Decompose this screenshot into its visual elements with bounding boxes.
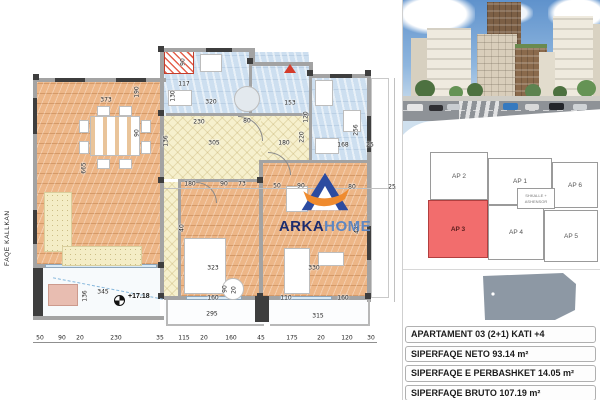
arkahome-logo-mark bbox=[299, 172, 351, 212]
facade-side-label: FAQE KALLKAN bbox=[4, 186, 11, 266]
dim-label: 20 bbox=[317, 335, 325, 342]
tower-roof-green bbox=[515, 44, 547, 48]
dim-label: 120 bbox=[341, 335, 352, 342]
dim-label: 73 bbox=[238, 181, 246, 188]
dim-label: 320 bbox=[205, 99, 216, 106]
key-plan-core: SHKALLE + ASHENSOR bbox=[517, 188, 555, 209]
dim-label: 45 bbox=[257, 335, 265, 342]
site-plan bbox=[405, 272, 598, 324]
car bbox=[503, 103, 518, 110]
car bbox=[407, 104, 423, 111]
keyplan-unit-ap5[interactable]: AP 5 bbox=[544, 210, 598, 262]
dim-label: 230 bbox=[110, 335, 121, 342]
dim-label: 130 bbox=[170, 90, 177, 101]
dim-label: 120 bbox=[303, 111, 310, 122]
page: FAQE KALLKAN bbox=[0, 0, 600, 400]
floor-plan: FAQE KALLKAN bbox=[0, 0, 402, 400]
info-row: APARTAMENT 03 (2+1) KATI +4 bbox=[405, 326, 596, 343]
dim-label: 136 bbox=[163, 135, 170, 146]
dim-label: 35 bbox=[156, 335, 164, 342]
site-plan-shape bbox=[405, 272, 598, 324]
level-marker-value: +17.18 bbox=[128, 293, 150, 300]
dim-label: 20 bbox=[200, 335, 208, 342]
dim-label: 90 bbox=[220, 181, 228, 188]
dim-label: 30 bbox=[367, 335, 375, 342]
dim-label: 180 bbox=[278, 140, 289, 147]
dim-label: 175 bbox=[286, 335, 297, 342]
dim-label: 330 bbox=[308, 265, 319, 272]
car bbox=[573, 104, 587, 110]
logo-name-primary: ARKA bbox=[279, 218, 324, 235]
unit-label: AP 2 bbox=[452, 173, 466, 180]
logo-name-secondary: HOME bbox=[324, 218, 371, 235]
separator-line bbox=[403, 269, 600, 270]
dim-label: 190 bbox=[134, 86, 141, 97]
info-row: SIPERFAQE NETO 93.14 m² bbox=[405, 346, 596, 363]
dim-label: 90 bbox=[222, 285, 229, 293]
tree bbox=[577, 80, 596, 97]
dim-label: 230 bbox=[193, 119, 204, 126]
dim-label: 25 bbox=[388, 184, 396, 191]
info-row: SIPERFAQE BRUTO 107.19 m² bbox=[405, 385, 596, 400]
dim-label: 25 bbox=[366, 142, 374, 149]
car bbox=[429, 105, 443, 111]
info-row: SIPERFAQE E PERBASHKET 14.05 m² bbox=[405, 365, 596, 382]
dim-label: 115 bbox=[178, 335, 189, 342]
dim-label: 160 bbox=[207, 295, 218, 302]
car bbox=[549, 103, 564, 110]
core-label-2: ASHENSOR bbox=[525, 199, 547, 204]
dim-label: 110 bbox=[280, 295, 291, 302]
dim-label: 160 bbox=[225, 335, 236, 342]
room-corridor bbox=[164, 182, 178, 296]
dim-label: 305 bbox=[208, 140, 219, 147]
keyplan-unit-ap4[interactable]: AP 4 bbox=[488, 205, 544, 260]
dim-label: 80 bbox=[243, 118, 251, 125]
unit-label: AP 6 bbox=[568, 182, 582, 189]
key-plan: AP 2AP 1AP 6AP 3AP 4AP 5 SHKALLE + ASHEN… bbox=[425, 148, 598, 264]
vent-marker-icon bbox=[284, 64, 296, 73]
dim-label: 323 bbox=[207, 265, 218, 272]
unit-label: AP 4 bbox=[509, 229, 523, 236]
dim-label: 20 bbox=[231, 286, 238, 294]
dim-label: 90 bbox=[180, 58, 187, 66]
dim-label: 50 bbox=[36, 335, 44, 342]
unit-label: AP 3 bbox=[451, 226, 465, 233]
apartment-info: APARTAMENT 03 (2+1) KATI +4SIPERFAQE NET… bbox=[403, 324, 600, 400]
arkahome-logo: ARKAHOME bbox=[262, 172, 388, 234]
dim-label: 665 bbox=[81, 162, 88, 173]
keyplan-unit-ap2[interactable]: AP 2 bbox=[430, 152, 488, 200]
dim-label: 90 bbox=[58, 335, 66, 342]
dim-label: 136 bbox=[82, 290, 89, 301]
dim-label: 90 bbox=[134, 129, 141, 137]
building-render bbox=[403, 0, 600, 146]
dim-label: 220 bbox=[299, 131, 306, 142]
dim-label: 117 bbox=[178, 81, 189, 88]
dim-label: 295 bbox=[206, 311, 217, 318]
dim-label: 40 bbox=[179, 224, 186, 232]
unit-label: AP 1 bbox=[513, 178, 527, 185]
dim-label: 315 bbox=[312, 313, 323, 320]
dim-label: 160 bbox=[337, 295, 348, 302]
dim-label: 180 bbox=[184, 181, 195, 188]
dim-line bbox=[33, 342, 377, 343]
car bbox=[525, 104, 539, 110]
dim-label: 345 bbox=[97, 289, 108, 296]
dim-label: 153 bbox=[284, 100, 295, 107]
dim-label: 20 bbox=[76, 335, 84, 342]
dim-label: 256 bbox=[353, 124, 360, 135]
arkahome-logo-text: ARKAHOME bbox=[262, 219, 388, 234]
dim-label: 373 bbox=[100, 97, 111, 104]
dim-label: 168 bbox=[337, 142, 348, 149]
level-marker-icon bbox=[114, 295, 125, 306]
car bbox=[447, 104, 460, 110]
unit-label: AP 5 bbox=[564, 233, 578, 240]
keyplan-unit-ap3[interactable]: AP 3 bbox=[428, 200, 488, 258]
keyplan-unit-ap6[interactable]: AP 6 bbox=[552, 162, 598, 208]
